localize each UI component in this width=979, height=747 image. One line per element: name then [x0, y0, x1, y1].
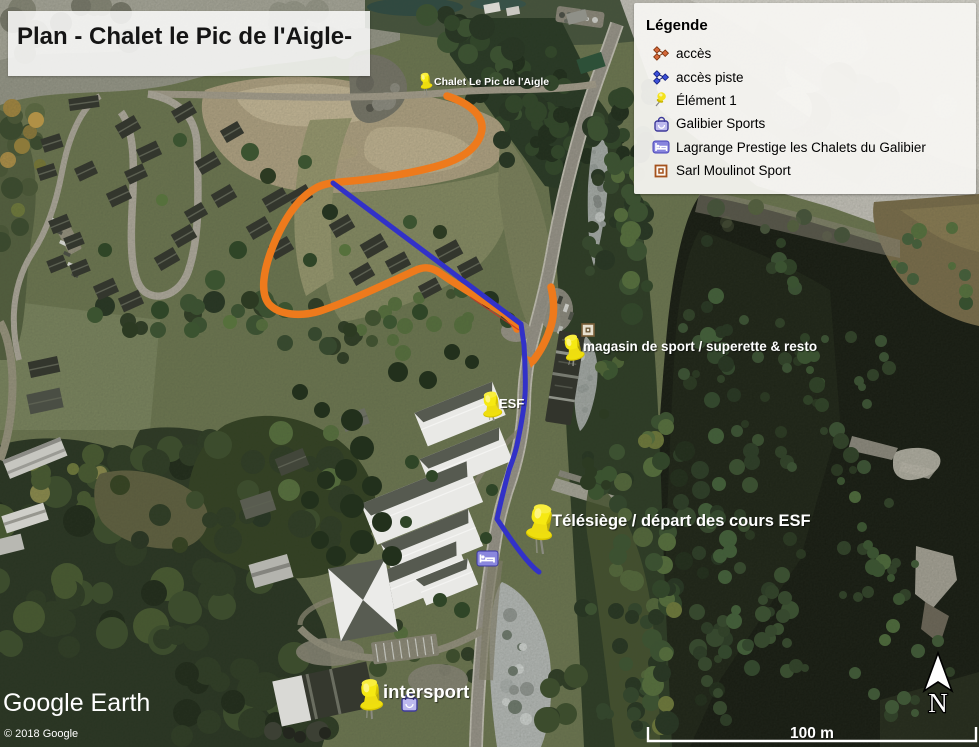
svg-text:magasin de sport / superette &: magasin de sport / superette & resto	[583, 339, 817, 354]
svg-text:intersport: intersport	[383, 681, 469, 702]
svg-text:ESF: ESF	[499, 396, 524, 411]
svg-text:Télésiège / départ des cours E: Télésiège / départ des cours ESF	[552, 512, 811, 530]
svg-text:100 m: 100 m	[790, 725, 834, 742]
svg-text:N: N	[928, 688, 948, 718]
svg-text:Chalet Le Pic de l'Aigle: Chalet Le Pic de l'Aigle	[434, 76, 549, 88]
